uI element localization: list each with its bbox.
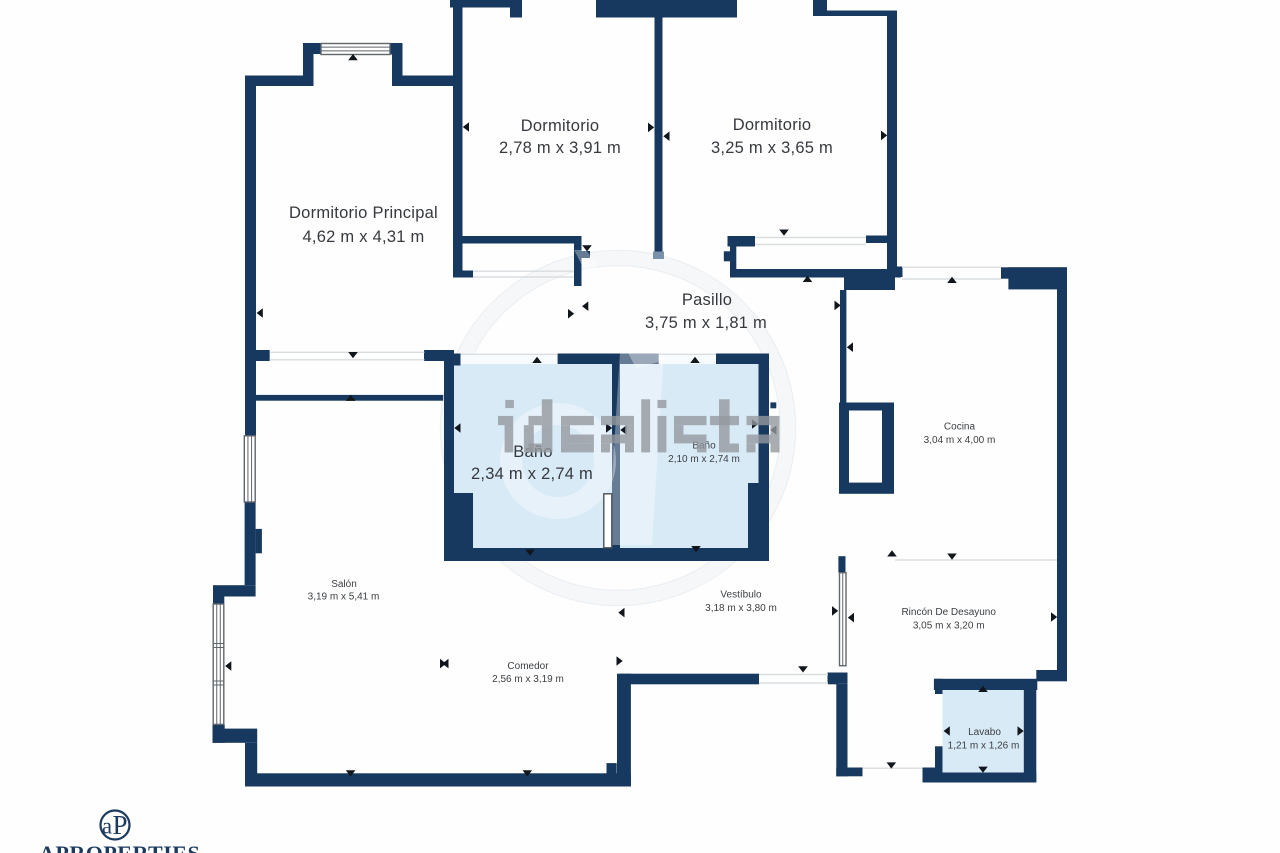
- svg-text:Salón: Salón: [331, 579, 357, 590]
- svg-text:2,56 m x 3,19 m: 2,56 m x 3,19 m: [492, 674, 564, 685]
- svg-text:a: a: [102, 814, 112, 839]
- svg-text:Rincón De Desayuno: Rincón De Desayuno: [901, 607, 996, 618]
- svg-text:Dormitorio: Dormitorio: [521, 117, 600, 135]
- svg-text:2,78 m x 3,91 m: 2,78 m x 3,91 m: [499, 139, 621, 157]
- svg-text:2,10 m x 2,74 m: 2,10 m x 2,74 m: [668, 454, 740, 465]
- svg-text:Comedor: Comedor: [507, 661, 549, 672]
- svg-text:Cocina: Cocina: [944, 422, 976, 433]
- svg-text:Pasillo: Pasillo: [682, 291, 732, 309]
- svg-text:3,25 m x 3,65 m: 3,25 m x 3,65 m: [711, 139, 833, 157]
- svg-text:Lavabo: Lavabo: [968, 727, 1001, 738]
- svg-text:Dormitorio: Dormitorio: [733, 116, 812, 134]
- svg-text:1,21 m x 1,26 m: 1,21 m x 1,26 m: [948, 741, 1020, 752]
- svg-text:Dormitorio Principal: Dormitorio Principal: [289, 204, 438, 222]
- svg-text:3,05 m x 3,20 m: 3,05 m x 3,20 m: [913, 621, 985, 632]
- svg-text:3,19 m x 5,41 m: 3,19 m x 5,41 m: [308, 592, 380, 603]
- svg-text:2,34 m x 2,74 m: 2,34 m x 2,74 m: [471, 465, 593, 483]
- svg-text:3,04 m x 4,00 m: 3,04 m x 4,00 m: [924, 435, 996, 446]
- svg-text:4,62 m x 4,31 m: 4,62 m x 4,31 m: [302, 228, 424, 246]
- svg-text:APROPERTIES: APROPERTIES: [39, 841, 200, 853]
- svg-text:3,18 m x 3,80 m: 3,18 m x 3,80 m: [705, 603, 777, 614]
- svg-text:3,75 m x 1,81 m: 3,75 m x 1,81 m: [645, 314, 767, 332]
- svg-text:Vestíbulo: Vestíbulo: [720, 590, 762, 601]
- svg-text:P: P: [112, 810, 127, 840]
